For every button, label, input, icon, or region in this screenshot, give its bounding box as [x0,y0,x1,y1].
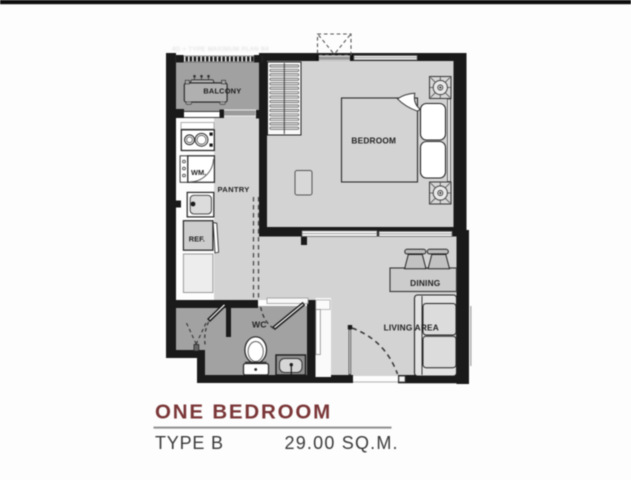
svg-text:REF.: REF. [189,235,205,244]
svg-text:PANTRY: PANTRY [218,185,250,194]
svg-text:TYPE B: TYPE B [155,433,224,453]
svg-text:WC: WC [252,319,267,329]
svg-text:BEDROOM: BEDROOM [351,136,396,146]
svg-text:DINING: DINING [410,278,440,288]
svg-text:BALCONY: BALCONY [203,87,241,96]
svg-text:LIVING AREA: LIVING AREA [384,322,439,332]
svg-text:ONE BEDROOM: ONE BEDROOM [155,400,332,423]
svg-text:WM.: WM. [191,168,206,177]
svg-text:29.00 SQ.M.: 29.00 SQ.M. [285,433,399,453]
svg-text:4D + TYPE MAXIMUM PLAN B4: 4D + TYPE MAXIMUM PLAN B4 [172,47,269,53]
